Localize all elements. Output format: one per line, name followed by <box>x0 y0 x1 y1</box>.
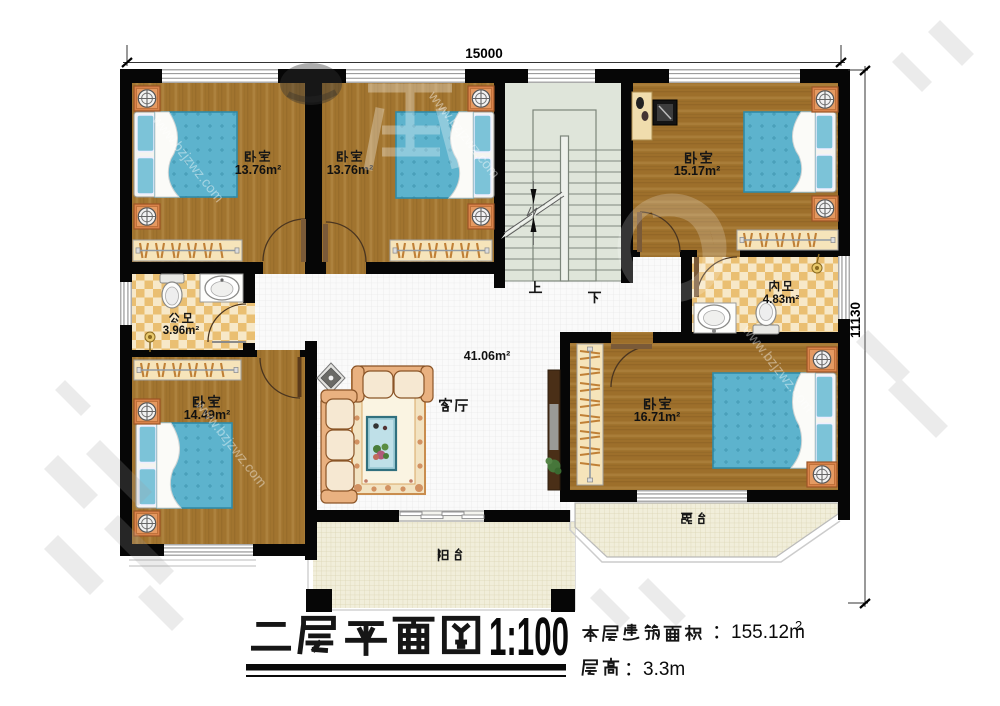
svg-text:4.83m²: 4.83m² <box>763 294 800 306</box>
svg-text:15.17m²: 15.17m² <box>674 164 721 178</box>
svg-text:2: 2 <box>795 618 802 633</box>
svg-text:3.96m²: 3.96m² <box>163 325 200 337</box>
svg-text:13.76m²: 13.76m² <box>235 163 282 177</box>
svg-text:16.71m²: 16.71m² <box>634 410 681 424</box>
svg-text:：155.12m: ：155.12m <box>712 622 805 643</box>
svg-text:41.06m²: 41.06m² <box>464 349 511 363</box>
svg-text:11130: 11130 <box>848 302 863 338</box>
svg-text:1:100: 1:100 <box>489 607 569 667</box>
svg-text:：3.3m: ：3.3m <box>624 659 685 680</box>
svg-text:15000: 15000 <box>465 46 503 61</box>
